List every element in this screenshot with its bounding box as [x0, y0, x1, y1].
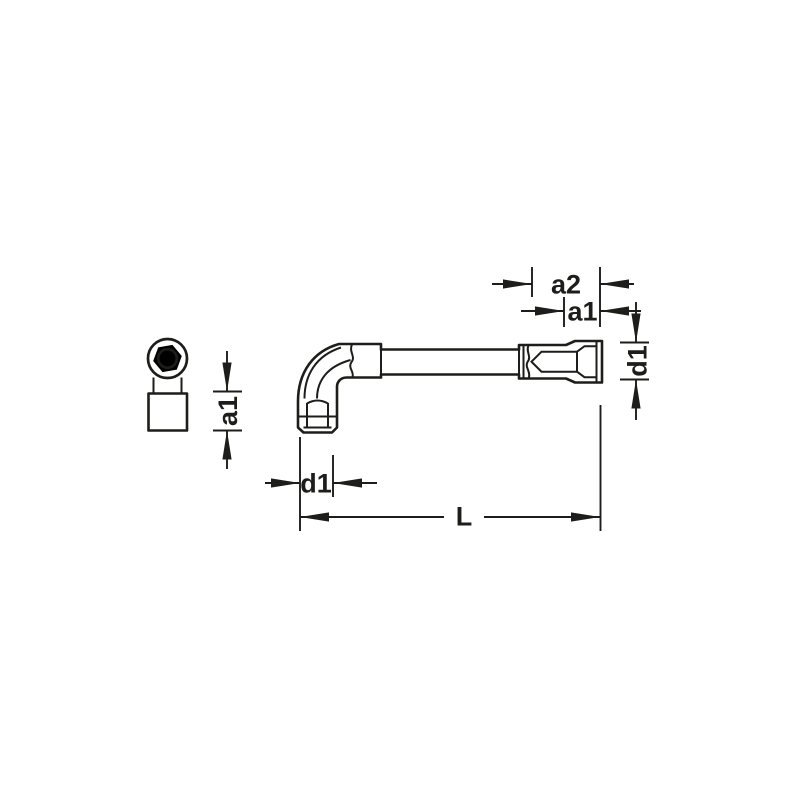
dimension-a2: a2 — [492, 267, 634, 327]
dimension-a1-left: a1 — [213, 351, 243, 469]
d1-right-arrowhead-bottom-icon — [631, 380, 640, 409]
dimension-d1-right: d1 — [620, 302, 652, 420]
a1-top-arrowhead-right-icon — [600, 306, 629, 315]
a1-left-label: a1 — [213, 396, 243, 426]
dimension-d1-bottom: d1 — [265, 455, 377, 498]
a2-arrowhead-right-icon — [600, 279, 629, 288]
a2-label: a2 — [551, 269, 581, 299]
l-wrench-side-view — [298, 341, 602, 433]
a2-arrowhead-left-icon — [503, 279, 532, 288]
d1-right-label: d1 — [622, 345, 652, 377]
a1-left-arrowhead-top-icon — [222, 363, 231, 392]
d1-bottom-arrowhead-right-icon — [333, 478, 362, 487]
a1-top-arrowhead-left-icon — [535, 306, 564, 315]
end-view-body-block — [149, 394, 188, 431]
a1-top-label: a1 — [567, 296, 597, 326]
length-arrowhead-right-icon — [571, 512, 600, 521]
wrench-technical-drawing: a2 a1 d1 a1 d1 — [0, 0, 800, 800]
dimension-a1-top: a1 — [521, 296, 641, 327]
length-arrowhead-left-icon — [300, 512, 329, 521]
a1-left-arrowhead-bottom-icon — [222, 431, 231, 460]
length-label: L — [456, 501, 473, 531]
socket-end-view — [148, 339, 187, 431]
technical-drawing-canvas: a2 a1 d1 a1 d1 — [0, 0, 800, 800]
d1-right-arrowhead-top-icon — [631, 314, 640, 343]
wrench-outline — [298, 341, 602, 433]
d1-bottom-label: d1 — [300, 468, 332, 498]
d1-bottom-arrowhead-left-icon — [271, 478, 300, 487]
dimension-length: L — [300, 405, 601, 531]
